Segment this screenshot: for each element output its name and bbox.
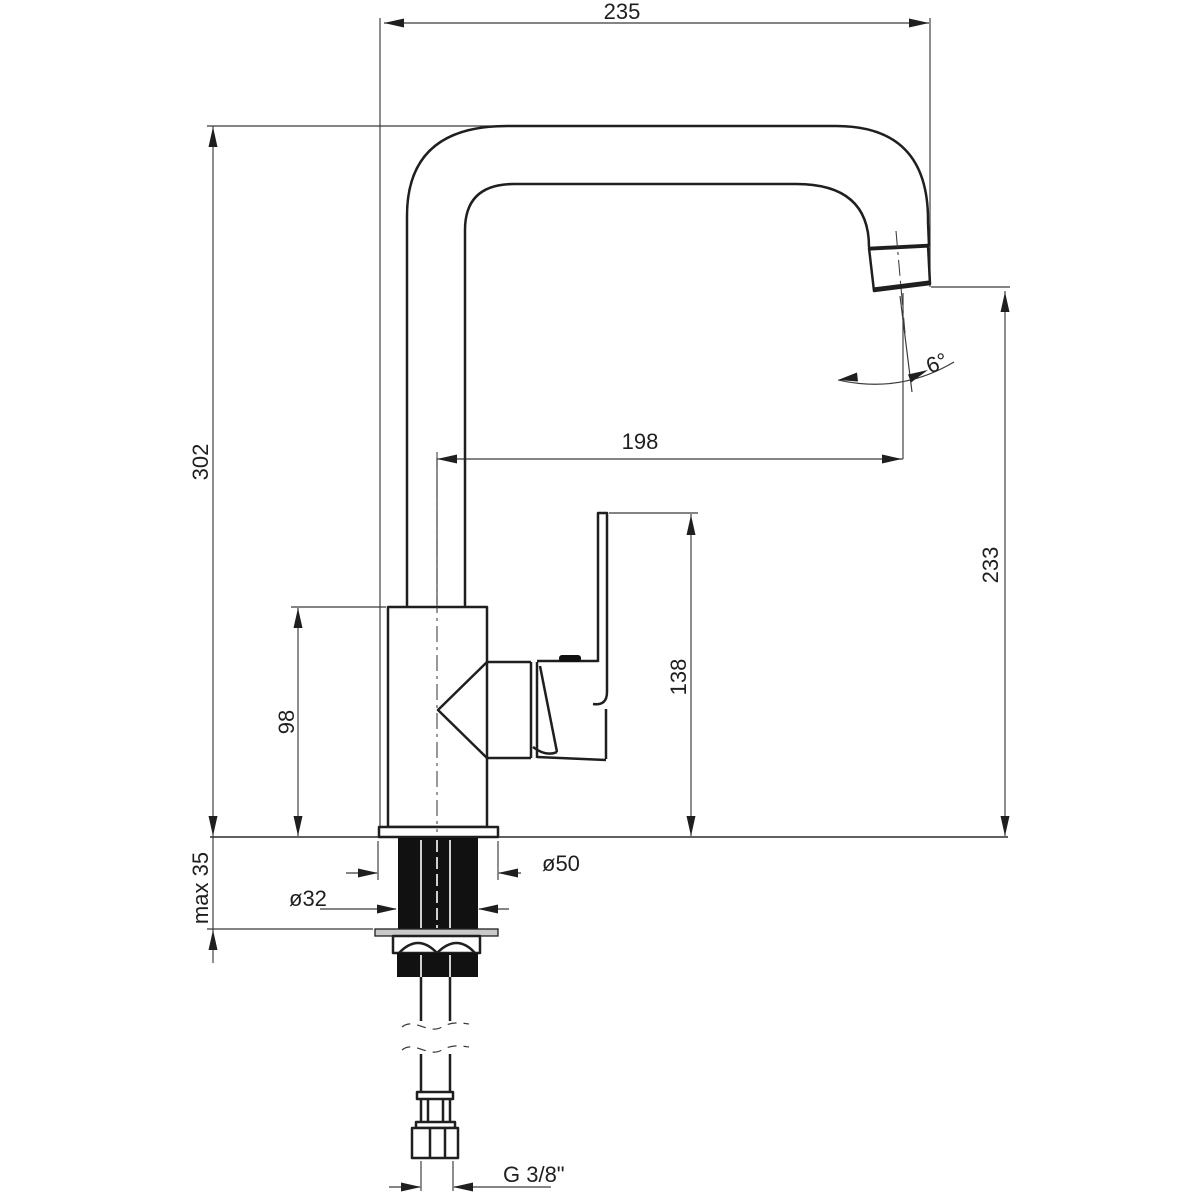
arrowhead — [882, 455, 902, 464]
label-spout-reach: 198 — [622, 429, 659, 454]
supply-hose-upper — [421, 977, 450, 1021]
fitting-tube — [421, 1099, 450, 1122]
label-supply-thread: G 3/8" — [503, 1162, 565, 1187]
fitting-collar-upper — [417, 1092, 453, 1099]
base-plate — [379, 827, 498, 837]
arrowhead — [838, 373, 858, 382]
arrowhead — [687, 816, 696, 836]
arrowhead — [453, 1183, 473, 1192]
arrowhead — [909, 19, 929, 28]
dimension-lines — [207, 18, 1010, 1192]
handle-lever-blade — [593, 513, 607, 704]
hose-break-line-1 — [402, 1023, 469, 1029]
label-base-diameter: ø50 — [542, 851, 580, 876]
label-shank-diameter: ø32 — [289, 886, 327, 911]
hose-break-line-2 — [402, 1046, 469, 1052]
spout-pipe-inner — [465, 184, 869, 607]
arrowhead — [294, 816, 303, 836]
label-body-height: 98 — [274, 710, 299, 734]
label-spout-outlet-height: 233 — [978, 547, 1003, 584]
arrowhead — [209, 127, 218, 147]
arrowhead — [437, 455, 457, 464]
label-overall-height: 302 — [188, 444, 213, 481]
arrowhead — [1001, 816, 1010, 836]
cartridge-joint — [531, 662, 537, 758]
arrowhead — [209, 930, 218, 950]
supply-hose-lower — [421, 1054, 450, 1092]
handle-inner-contour — [540, 666, 557, 752]
arrowhead — [384, 19, 404, 28]
handle-body-bottom — [537, 757, 606, 760]
arrowhead — [401, 1183, 421, 1192]
arrowhead — [358, 869, 378, 878]
threaded-shank — [398, 838, 478, 929]
arrowhead — [498, 869, 518, 878]
technical-drawing-page: 235 302 198 233 138 98 max 35 ø50 ø32 6°… — [0, 0, 1200, 1200]
lower-thread — [397, 953, 478, 977]
mounting-nut — [393, 936, 480, 953]
arrowhead — [1001, 292, 1010, 312]
handle-indicator-dot — [559, 655, 581, 662]
fitting-hex-nut — [412, 1128, 458, 1158]
arrowhead — [209, 816, 218, 836]
arrowhead — [478, 905, 498, 914]
label-outlet-angle: 6° — [922, 347, 951, 378]
faucet-outline — [375, 126, 930, 1158]
label-overall-depth: 235 — [604, 0, 641, 24]
technical-drawing-canvas: 235 302 198 233 138 98 max 35 ø50 ø32 6°… — [0, 0, 1200, 1200]
arrowhead — [687, 515, 696, 535]
arrowhead — [294, 608, 303, 628]
label-handle-height: 138 — [666, 659, 691, 696]
arrowhead — [377, 905, 397, 914]
label-max-mounting-thickness: max 35 — [188, 852, 213, 924]
dimension-labels: 235 302 198 233 138 98 max 35 ø50 ø32 6°… — [188, 0, 1003, 1187]
